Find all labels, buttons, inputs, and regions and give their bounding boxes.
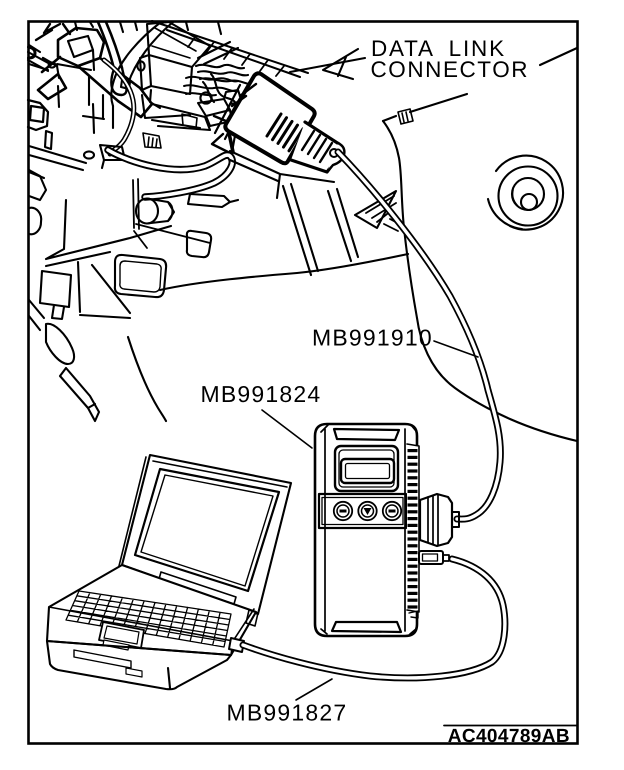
svg-text:MB991910: MB991910 xyxy=(312,325,433,351)
svg-text:MB991824: MB991824 xyxy=(201,381,322,407)
svg-text:AC404789AB: AC404789AB xyxy=(448,726,570,747)
svg-text:CONNECTOR: CONNECTOR xyxy=(371,57,530,82)
svg-text:MB991827: MB991827 xyxy=(227,700,348,726)
